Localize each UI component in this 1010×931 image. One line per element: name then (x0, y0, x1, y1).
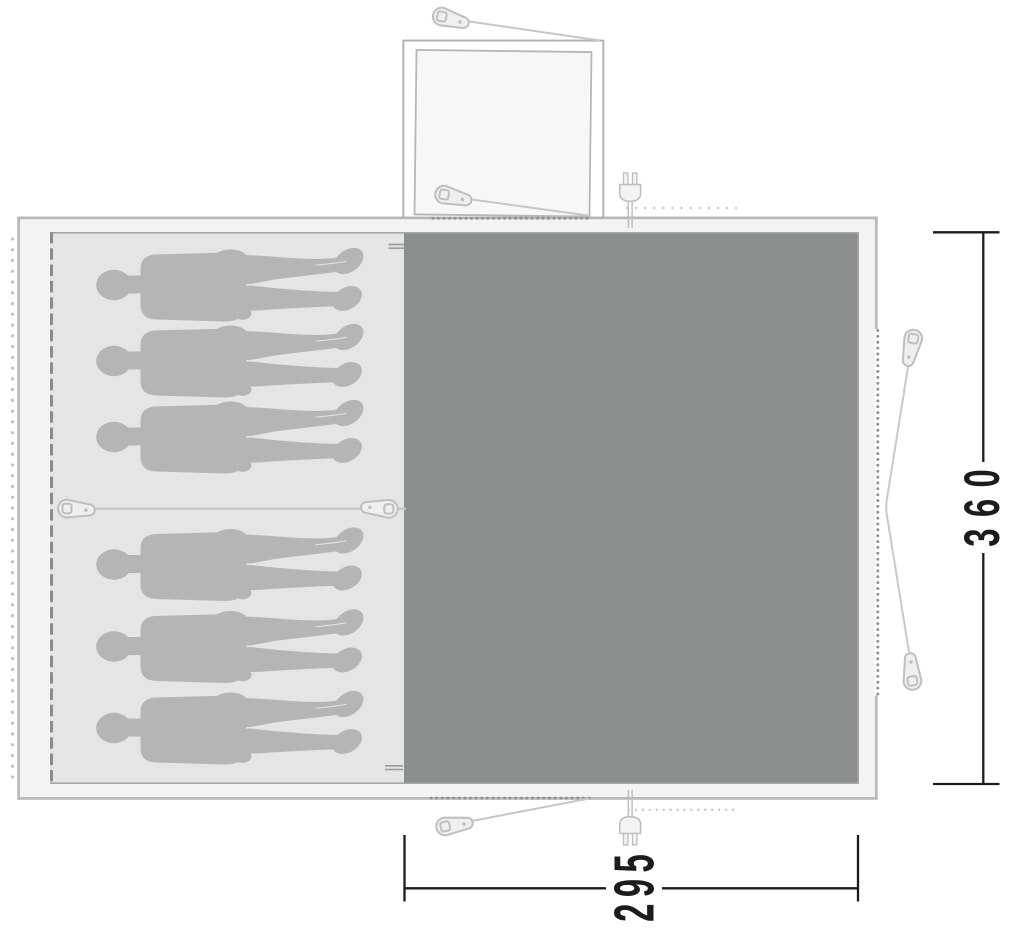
svg-text:360: 360 (954, 458, 1010, 547)
svg-text:295: 295 (602, 848, 666, 922)
